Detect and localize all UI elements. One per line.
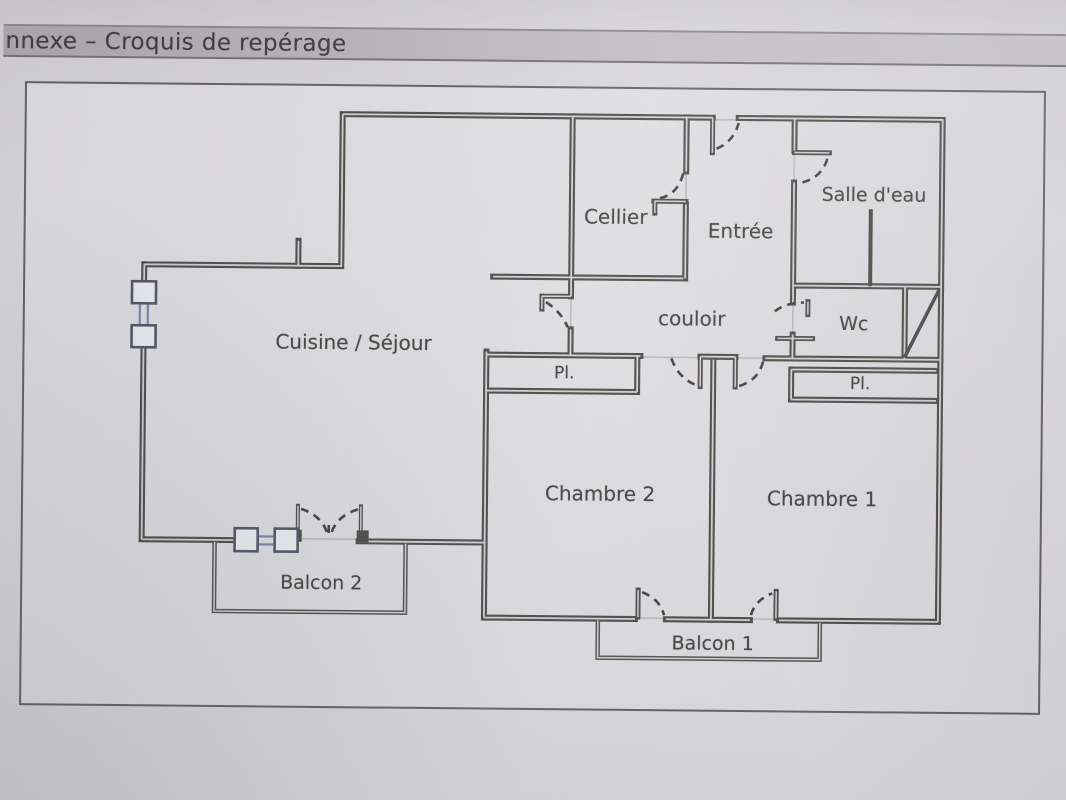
room-label-placard-chambre-2: Pl. [554,363,575,383]
paper-sheet: nnexe – Croquis de repérage [0,0,1066,800]
page-title: nnexe – Croquis de repérage [5,28,346,57]
room-label-couloir: couloir [658,306,726,331]
room-label-cellier: Cellier [584,204,648,229]
room-label-entree: Entrée [708,219,774,244]
room-label-cuisine-sejour: Cuisine / Séjour [275,330,432,355]
room-label-placard-chambre-1: Pl. [850,374,871,394]
room-label-balcon-2: Balcon 2 [280,572,362,595]
document-photo: nnexe – Croquis de repérage [0,0,1066,800]
room-label-salle-deau: Salle d'eau [822,184,927,207]
plan-frame [19,81,1046,715]
room-label-chambre-1: Chambre 1 [767,486,877,511]
room-label-wc: Wc [839,313,868,335]
room-label-balcon-1: Balcon 1 [671,632,753,655]
annex-title-bar: nnexe – Croquis de repérage [3,24,1066,67]
room-label-chambre-2: Chambre 2 [545,481,655,506]
